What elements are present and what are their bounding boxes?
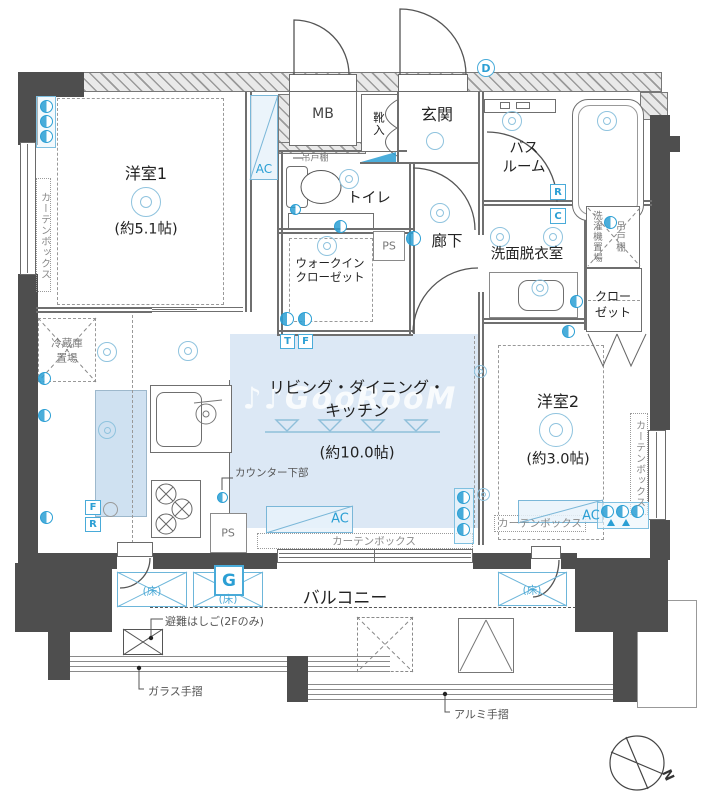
window-mullion	[27, 144, 28, 273]
aluminum-railing-line	[308, 694, 638, 695]
wall-right-lower	[650, 520, 670, 560]
wall-bottom-band	[36, 553, 117, 569]
label-aluminum-handrail: アルミ手摺	[454, 706, 509, 722]
label-laundry-space: 洗濯機置場	[589, 211, 603, 264]
room-label-hallway: 廊下	[431, 229, 462, 251]
railing-post	[287, 656, 308, 702]
room-label-washroom: 洗面脱衣室	[491, 243, 564, 264]
outlet-icon	[40, 100, 53, 113]
gas-stove	[151, 480, 201, 538]
label-curtain-box-ldk: カーテンボックス	[332, 534, 416, 549]
shower-panel-button	[500, 102, 510, 109]
wall-line	[483, 322, 586, 324]
sliding-door-line	[152, 311, 243, 312]
wall-line	[482, 292, 484, 545]
outlet-icon	[457, 523, 470, 536]
kitchen-sink	[156, 392, 202, 447]
sliding-door-line	[152, 307, 243, 308]
kitchen-counter-fill	[95, 390, 147, 517]
ceiling-light	[477, 488, 490, 501]
ceiling-light	[426, 132, 444, 150]
aluminum-railing-line	[308, 684, 638, 685]
marker-r: R	[550, 184, 566, 200]
window-mullion	[374, 549, 375, 563]
mb-door-opening	[289, 74, 357, 92]
room-label-bathroom-1: バス	[510, 137, 539, 158]
toilet-hand-basin-counter	[288, 213, 374, 229]
outlet-icon	[280, 312, 294, 326]
outlet-icon	[298, 312, 312, 326]
wall-line	[281, 150, 283, 334]
balcony-equipment-dashed	[357, 617, 413, 672]
ldk-balcony-window	[277, 549, 473, 563]
marker-d: D	[477, 59, 495, 77]
room-label-western2: 洋室2	[537, 388, 579, 412]
room-label-balcony: バルコニー	[303, 584, 388, 609]
outlet-icon	[38, 372, 51, 385]
ceiling-light	[317, 236, 337, 256]
label-hanging-shelf-toilet: 吊戸棚	[301, 151, 328, 164]
label-curtain-box-right: カーテンボックス	[632, 420, 647, 508]
ceiling-light	[97, 342, 117, 362]
evacuation-hatch-box	[123, 629, 163, 655]
room-label-bathroom-2: ルーム	[502, 156, 545, 177]
ceiling-light	[502, 111, 522, 131]
sliding-door-line	[152, 309, 197, 310]
room-label-western1: 洋室1	[125, 160, 167, 184]
entrance-door-opening	[398, 74, 468, 92]
wall-line	[409, 163, 411, 334]
outlet-icon	[562, 325, 575, 338]
wall-bottom-left-leg	[48, 632, 70, 680]
wall-bottom-right-block	[575, 558, 668, 632]
outlet-icon	[38, 409, 51, 422]
entrance-step-wedge	[361, 152, 396, 162]
outlet-icon	[570, 295, 583, 308]
room-label-mb: MB	[312, 106, 334, 122]
wall-line	[36, 311, 152, 313]
counter-tap-icon	[217, 492, 228, 503]
glass-railing-line	[70, 666, 390, 667]
label-hanging-shelf-laundry: 吊戸棚	[612, 221, 626, 253]
ceiling-light	[539, 413, 573, 447]
toilet-tank	[286, 166, 308, 208]
wall-line	[36, 307, 152, 309]
label-curtain-box-left: カーテンボックス	[37, 192, 52, 280]
marker-circle	[103, 502, 118, 517]
room-label-wic-2: クローゼット	[296, 269, 365, 285]
floor-plan: ♪♪GooRooM D R C T F F R G 洋室1 (約5.1帖)	[0, 0, 708, 800]
glass-railing-line	[70, 656, 390, 657]
window-west1-left	[20, 142, 36, 275]
label-curtain-box-west2: カーテンボックス	[498, 516, 582, 531]
outlet-icon	[290, 204, 301, 215]
hallway-switch-icon	[406, 231, 421, 246]
ldk-dashed-line	[474, 336, 475, 528]
wall-line	[478, 292, 480, 545]
label-evacuation-ladder: 避難はしご(2Fのみ)	[165, 613, 264, 629]
west2-balcony-door	[531, 546, 561, 559]
marker-t: T	[280, 334, 295, 349]
ceiling-light	[178, 341, 198, 361]
outlet-icon	[457, 507, 470, 520]
aluminum-railing-line	[308, 689, 638, 690]
window-track	[279, 553, 471, 554]
label-ac-ldk: AC	[331, 512, 349, 527]
glass-railing-line	[70, 671, 390, 672]
ldk-door-arc	[413, 268, 478, 333]
ceiling-light	[98, 421, 116, 439]
wall-line	[483, 318, 586, 320]
balcony-equipment-solid	[458, 618, 514, 673]
window-mullion	[656, 432, 657, 518]
wall-bottom-left-block	[15, 563, 112, 632]
wall-line	[413, 163, 415, 334]
room-label-shoe-box: 靴入	[371, 112, 387, 137]
wall-right-upper	[650, 115, 670, 430]
wall-line	[482, 92, 484, 235]
room-size-western1: (約5.1帖)	[114, 218, 177, 239]
outlet-icon	[40, 130, 53, 143]
marker-c: C	[550, 208, 566, 224]
railing-post	[613, 630, 637, 702]
marker-f: F	[298, 334, 313, 349]
compass	[610, 736, 664, 790]
label-glass-handrail: ガラス手摺	[148, 683, 203, 699]
ldk-floor-fill	[230, 334, 480, 528]
ceiling-light	[597, 111, 617, 131]
wall-line	[478, 92, 480, 235]
outlet-icon	[616, 505, 629, 518]
label-ac-west1: AC	[256, 162, 272, 176]
marker-r-kitchen: R	[85, 517, 101, 532]
outlet-icon	[40, 115, 53, 128]
kitchen-dashed-line	[132, 315, 133, 553]
label-fridge-1: 冷蔵庫	[51, 336, 83, 351]
label-floor-hatch: (床)	[219, 592, 238, 607]
wall-left-upper	[18, 85, 38, 145]
wall-left-lower	[18, 274, 38, 563]
entrance-step-line	[360, 162, 478, 164]
glass-railing-line	[70, 661, 390, 662]
room-label-ldk-1: リビング・ダイニング・	[269, 374, 445, 398]
label-ac-west2: AC	[582, 509, 600, 524]
mb-door-arc	[294, 20, 349, 75]
ceiling-light	[474, 365, 487, 378]
hatched-wall-top	[83, 72, 662, 92]
label-counter-lower: カウンター下部	[235, 465, 309, 480]
window-west2-right	[648, 430, 666, 520]
room-label-ldk-2: キッチン	[325, 397, 389, 421]
room-size-ldk: (約10.0帖)	[319, 442, 394, 463]
washbasin	[518, 280, 564, 311]
outlet-icon	[457, 491, 470, 504]
wall-right-notch	[666, 136, 680, 152]
entrance-door-arc	[400, 9, 466, 75]
wall-bottom-band	[473, 553, 531, 569]
compass-north-label: N	[658, 767, 676, 783]
wall-line	[277, 330, 413, 332]
window-track	[279, 557, 471, 558]
ceiling-light	[131, 187, 161, 217]
antenna-icon	[607, 519, 615, 526]
room-label-closet-1: クロー	[595, 288, 631, 305]
aluminum-railing-line	[308, 699, 638, 700]
room-label-toilet: トイレ	[347, 187, 391, 208]
kitchen-balcony-door	[117, 542, 153, 557]
label-fridge-2: 置場	[57, 351, 78, 366]
ceiling-light	[430, 203, 450, 223]
marker-f-kitchen: F	[85, 500, 101, 515]
label-floor-hatch: (床)	[523, 583, 542, 598]
label-floor-hatch: (床)	[143, 584, 162, 599]
outlet-icon	[334, 220, 347, 233]
wall-line	[245, 92, 247, 312]
outlet-icon	[40, 511, 53, 524]
room-size-western2: (約3.0帖)	[526, 448, 589, 469]
shower-panel-button	[516, 102, 530, 109]
label-ps-toilet: PS	[382, 240, 396, 253]
label-ps-kitchen: PS	[221, 527, 235, 540]
room-label-closet-2: ゼット	[595, 304, 631, 321]
outlet-icon	[601, 505, 614, 518]
antenna-icon	[622, 519, 630, 526]
room-label-entrance: 玄関	[421, 101, 453, 125]
